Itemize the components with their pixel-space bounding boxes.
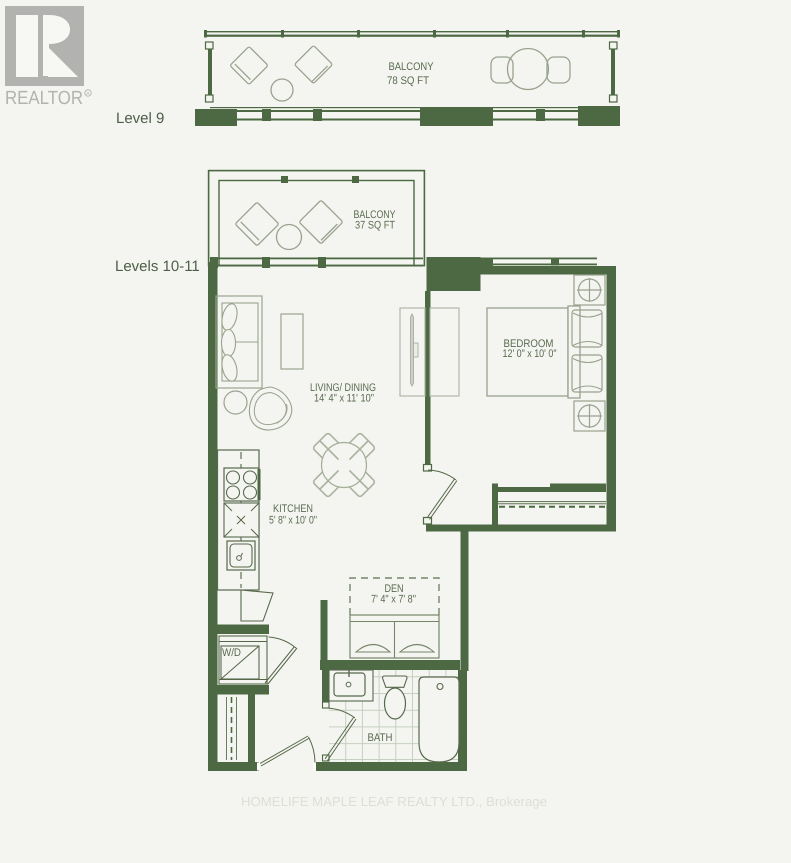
svg-text:KITCHEN: KITCHEN <box>273 503 313 515</box>
svg-text:37 SQ FT: 37 SQ FT <box>355 220 395 232</box>
svg-text:Levels 10-11: Levels 10-11 <box>115 258 200 275</box>
svg-text:7' 4" x 7' 8": 7' 4" x 7' 8" <box>371 594 416 606</box>
svg-text:12' 0" x 10' 0": 12' 0" x 10' 0" <box>503 348 557 360</box>
svg-text:5' 8" x 10' 0": 5' 8" x 10' 0" <box>269 515 317 527</box>
svg-text:HOMELIFE MAPLE LEAF REALTY LTD: HOMELIFE MAPLE LEAF REALTY LTD., Brokera… <box>241 794 547 809</box>
svg-text:REALTOR: REALTOR <box>5 88 83 109</box>
svg-text:14' 4" x 11' 10": 14' 4" x 11' 10" <box>314 393 374 405</box>
svg-text:78 SQ FT: 78 SQ FT <box>387 75 429 87</box>
svg-text:BATH: BATH <box>368 732 393 744</box>
svg-text:Level 9: Level 9 <box>116 110 164 127</box>
svg-text:W/D: W/D <box>222 647 241 659</box>
svg-text:BALCONY: BALCONY <box>389 61 435 73</box>
